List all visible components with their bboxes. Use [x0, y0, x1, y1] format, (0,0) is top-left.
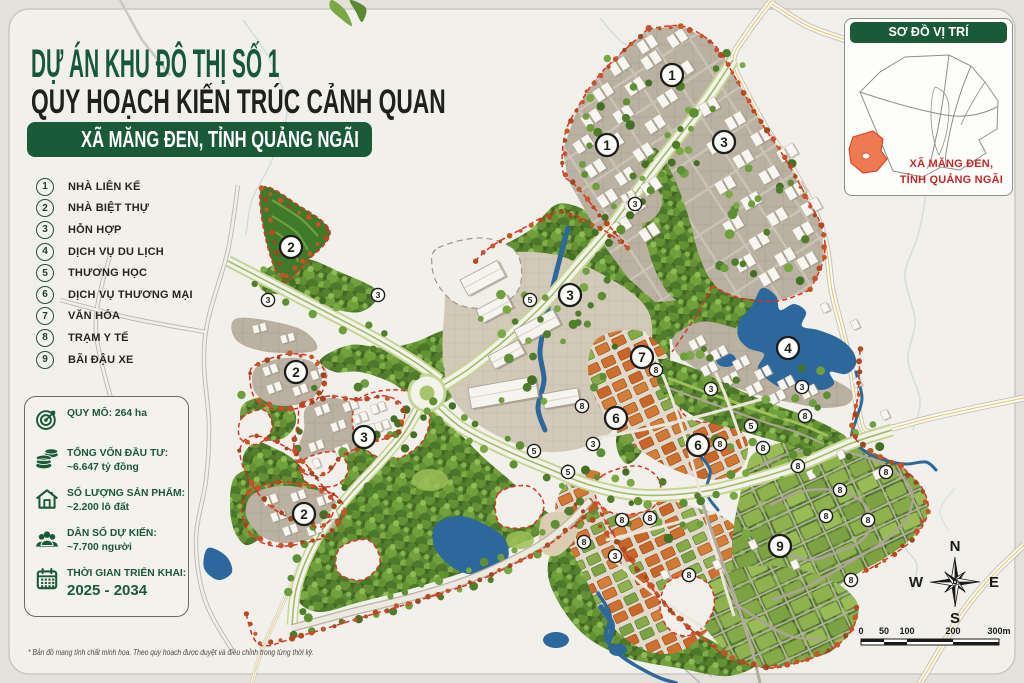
svg-text:2: 2: [287, 240, 295, 255]
svg-text:8: 8: [718, 439, 723, 449]
svg-text:8: 8: [824, 511, 829, 521]
svg-text:2: 2: [300, 507, 308, 522]
svg-text:5: 5: [532, 446, 537, 456]
svg-text:3: 3: [709, 384, 714, 394]
svg-text:6: 6: [612, 411, 620, 426]
svg-text:8: 8: [580, 401, 585, 411]
svg-text:E: E: [989, 574, 999, 591]
svg-text:5: 5: [528, 295, 533, 305]
svg-text:1: 1: [668, 68, 676, 83]
svg-text:8: 8: [687, 570, 692, 580]
svg-text:8: 8: [761, 443, 766, 453]
svg-text:8: 8: [803, 411, 808, 421]
svg-text:3: 3: [360, 430, 368, 445]
svg-text:W: W: [909, 574, 924, 591]
svg-text:3: 3: [800, 382, 805, 392]
svg-text:8: 8: [838, 485, 843, 495]
svg-text:8: 8: [620, 515, 625, 525]
svg-text:300m: 300m: [987, 626, 1010, 636]
svg-text:3: 3: [613, 551, 618, 561]
svg-text:7: 7: [638, 350, 646, 365]
svg-text:1: 1: [603, 138, 611, 153]
svg-text:8: 8: [884, 467, 889, 477]
svg-text:2: 2: [292, 365, 300, 380]
svg-text:8: 8: [648, 513, 653, 523]
svg-text:100: 100: [899, 626, 914, 636]
svg-text:200: 200: [945, 626, 960, 636]
svg-text:8: 8: [654, 365, 659, 375]
svg-text:9: 9: [776, 539, 784, 554]
svg-text:N: N: [950, 538, 961, 555]
svg-text:0: 0: [858, 626, 863, 636]
svg-text:3: 3: [266, 295, 271, 305]
svg-text:3: 3: [633, 199, 638, 209]
svg-text:50: 50: [879, 626, 889, 636]
svg-text:8: 8: [849, 575, 854, 585]
svg-text:5: 5: [749, 421, 754, 431]
svg-text:3: 3: [376, 290, 381, 300]
svg-text:3: 3: [566, 288, 574, 303]
svg-text:8: 8: [582, 537, 587, 547]
svg-text:8: 8: [796, 461, 801, 471]
svg-text:6: 6: [694, 438, 702, 453]
svg-text:3: 3: [591, 439, 596, 449]
svg-text:4: 4: [784, 341, 792, 356]
svg-text:S: S: [950, 610, 960, 627]
svg-text:5: 5: [566, 467, 571, 477]
svg-text:8: 8: [866, 515, 871, 525]
svg-text:3: 3: [720, 135, 728, 150]
